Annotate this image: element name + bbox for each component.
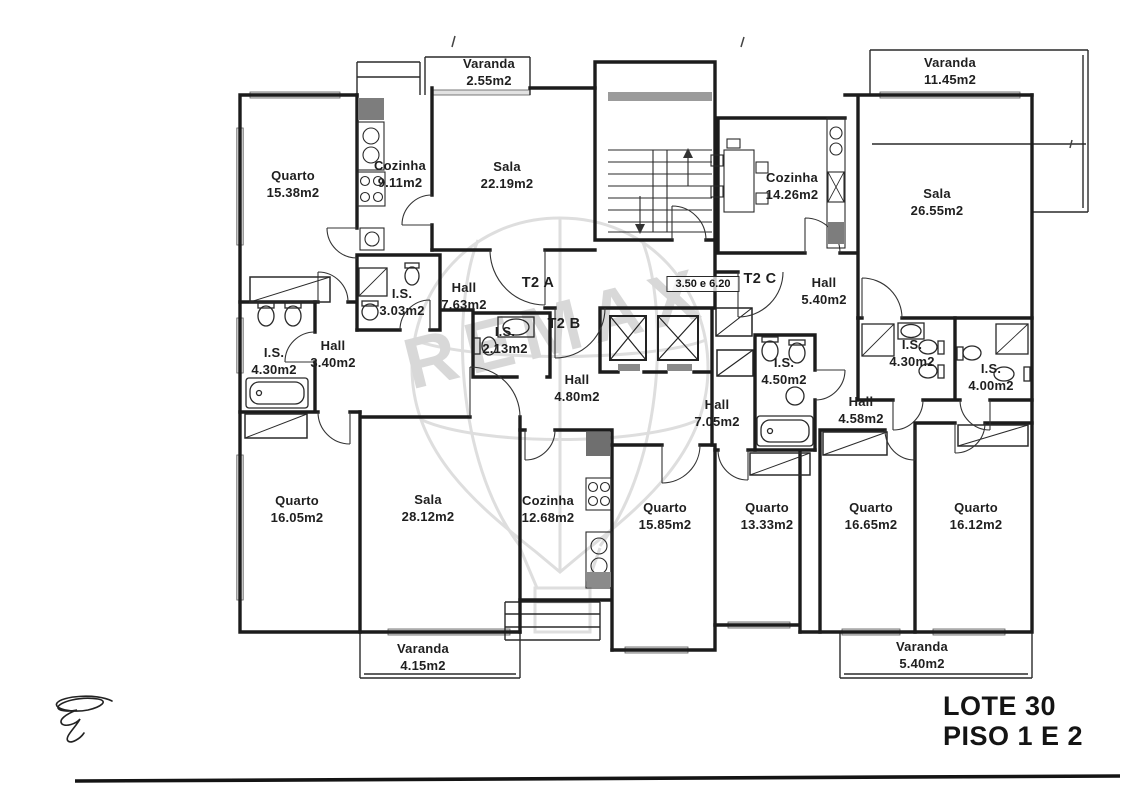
scanned-floor-plan-page: REMAX [0,0,1136,800]
room-label-quarto-1665: Quarto16.65m2 [845,499,898,533]
room-label-is-430-left: I.S.4.30m2 [251,344,296,378]
room-label-sala-2655: Sala26.55m2 [911,185,964,219]
room-label-hall-705: Hall7.05m2 [694,396,739,430]
plan-title-piso: PISO 1 E 2 [943,722,1083,752]
unit-tag-t2b: T2 B [547,316,580,332]
room-label-is-303: I.S.3.03m2 [379,285,424,319]
stair-dimension-note: 3.50 e 6.20 [666,276,739,292]
room-label-hall-540: Hall5.40m2 [801,274,846,308]
room-label-hall-458: Hall4.58m2 [838,393,883,427]
room-label-hall-480: Hall4.80m2 [554,371,599,405]
room-label-varanda-1145: Varanda11.45m2 [924,54,976,88]
room-label-quarto-1585: Quarto15.85m2 [639,499,692,533]
plan-title-block: LOTE 30 PISO 1 E 2 [943,692,1083,751]
room-label-cozinha-911: Cozinha9.11m2 [374,157,426,191]
room-label-varanda-415: Varanda4.15m2 [397,640,449,674]
room-label-quarto-1605: Quarto16.05m2 [271,492,324,526]
plan-title-lote: LOTE 30 [943,692,1083,722]
signature-mark [56,696,112,742]
room-label-cozinha-1268: Cozinha12.68m2 [522,492,575,526]
room-label-sala-2219: Sala22.19m2 [481,158,534,192]
room-label-cozinha-1426: Cozinha14.26m2 [766,169,819,203]
room-label-is-213: I.S.2.13m2 [482,323,527,357]
room-label-varanda-255: Varanda2.55m2 [463,55,515,89]
unit-tag-t2a: T2 A [522,275,554,291]
room-label-is-450: I.S.4.50m2 [761,354,806,388]
unit-tag-t2c: T2 C [743,271,776,287]
room-label-is-400: I.S.4.00m2 [968,360,1013,394]
room-label-quarto-1333: Quarto13.33m2 [741,499,794,533]
room-label-varanda-540: Varanda5.40m2 [896,638,948,672]
room-label-quarto-1612: Quarto16.12m2 [950,499,1003,533]
room-label-hall-763: Hall7.63m2 [441,279,486,313]
bottom-rule [75,776,1120,781]
room-label-quarto-1538: Quarto15.38m2 [267,167,320,201]
staircase [608,92,712,234]
room-label-is-430-right: I.S.4.30m2 [889,336,934,370]
room-label-hall-340: Hall3.40m2 [310,337,355,371]
room-label-sala-2812: Sala28.12m2 [402,491,455,525]
